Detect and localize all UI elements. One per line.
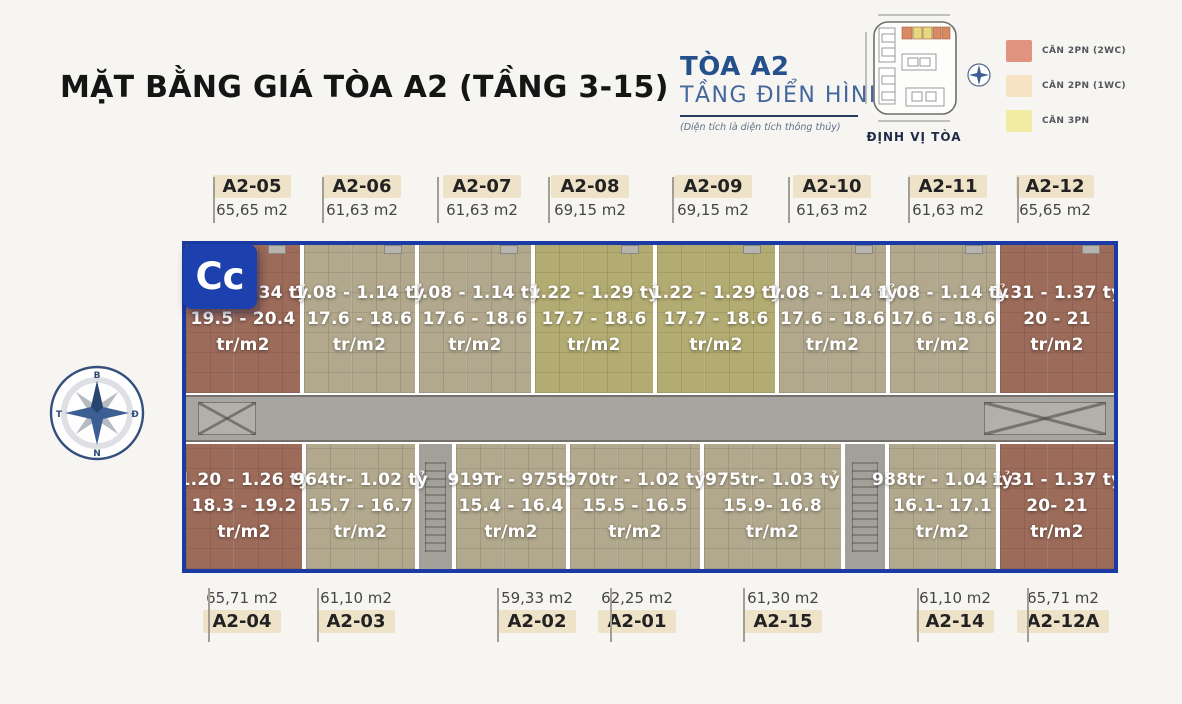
unit-cell-A2-12: 1.31 - 1.37 tỷ20 - 21tr/m2 — [1000, 245, 1114, 393]
unit-price-unit: tr/m2 — [333, 337, 386, 354]
unit-cell-A2-11: 1.08 - 1.14 tỷ17.6 - 18.6tr/m2 — [890, 245, 996, 393]
unit-id-chip: A2-06 — [323, 175, 402, 198]
unit-price-per-m2: 15.9- 16.8 — [723, 498, 822, 515]
unit-id-chip: A2-09 — [674, 175, 753, 198]
unit-area: 69,15 m2 — [653, 201, 773, 219]
label-divider — [610, 588, 612, 642]
unit-label-A2-07: A2-0761,63 m2 — [422, 175, 542, 222]
unit-price-unit: tr/m2 — [448, 337, 501, 354]
unit-cell-A2-10: 1.08 - 1.14 tỷ17.6 - 18.6tr/m2 — [779, 245, 886, 393]
legend-label: CĂN 3PN — [1042, 116, 1089, 126]
unit-cell-A2-12A: 1.31 - 1.37 tỷ20- 21tr/m2 — [1000, 444, 1114, 569]
unit-price-per-m2: 18.3 - 19.2 — [192, 498, 297, 515]
unit-price-per-m2: 20 - 21 — [1023, 311, 1091, 328]
unit-price-range: 970tr - 1.02 tỷ — [565, 472, 706, 489]
unit-price-unit: tr/m2 — [334, 524, 387, 541]
unit-price-per-m2: 16.1- 17.1 — [893, 498, 992, 515]
legend: CĂN 2PN (2WC)CĂN 2PN (1WC)CĂN 3PN — [1006, 40, 1126, 145]
unit-cell-A2-15: 975tr- 1.03 tỷ15.9- 16.8tr/m2 — [704, 444, 841, 569]
unit-price-unit: tr/m2 — [916, 524, 969, 541]
unit-id-chip: A2-08 — [551, 175, 630, 198]
unit-price-unit: tr/m2 — [689, 337, 742, 354]
unit-price-range: 1.08 - 1.14 tỷ — [410, 285, 541, 302]
unit-price-unit: tr/m2 — [806, 337, 859, 354]
unit-id-chip: A2-02 — [498, 610, 577, 633]
site-map-compass-icon — [966, 62, 992, 88]
floor-plan-top-row: 1.28 - 1.34 tỷ19.5 - 20.4tr/m21.08 - 1.1… — [186, 245, 1114, 393]
unit-area: 61,30 m2 — [723, 589, 843, 607]
unit-price-range: 1.22 - 1.29 tỷ — [529, 285, 660, 302]
unit-id-chip: A2-15 — [744, 610, 823, 633]
unit-price-range: 1.08 - 1.14 tỷ — [294, 285, 425, 302]
unit-price-range: 964tr- 1.02 tỷ — [293, 472, 428, 489]
unit-label-A2-01: 62,25 m2A2-01 — [577, 586, 697, 633]
unit-area: 65,65 m2 — [995, 201, 1115, 219]
legend-label: CĂN 2PN (1WC) — [1042, 81, 1126, 91]
brand-floor-type: TẦNG ĐIỂN HÌNH — [680, 83, 860, 108]
label-divider — [322, 177, 324, 223]
unit-cell-A2-02: 919Tr - 975tr15.4 - 16.4tr/m2 — [456, 444, 566, 569]
label-divider — [317, 588, 319, 642]
unit-label-A2-06: A2-0661,63 m2 — [302, 175, 422, 222]
unit-label-A2-10: A2-1061,63 m2 — [772, 175, 892, 222]
unit-price-range: 919Tr - 975tr — [447, 472, 574, 489]
legend-item: CĂN 3PN — [1006, 110, 1126, 132]
unit-label-A2-15: 61,30 m2A2-15 — [723, 586, 843, 633]
unit-cell-A2-14: 988tr - 1.04 tỷ16.1- 17.1tr/m2 — [889, 444, 996, 569]
unit-price-range: 1.31 - 1.37 tỷ — [992, 472, 1118, 489]
legend-swatch — [1006, 75, 1032, 97]
site-map-label: ĐỊNH VỊ TÒA — [858, 130, 970, 144]
unit-cell-A2-07: 1.08 - 1.14 tỷ17.6 - 18.6tr/m2 — [419, 245, 531, 393]
label-divider — [908, 177, 910, 223]
unit-area: 65,65 m2 — [192, 201, 312, 219]
unit-id-chip: A2-03 — [317, 610, 396, 633]
unit-price-unit: tr/m2 — [608, 524, 661, 541]
page-title: MẶT BẰNG GIÁ TÒA A2 (TẦNG 3-15) — [60, 70, 669, 105]
floor-plan-bottom-row: 1.20 - 1.26 tỷ18.3 - 19.2tr/m2964tr- 1.0… — [186, 444, 1114, 569]
label-divider — [213, 177, 215, 223]
unit-label-A2-05: A2-0565,65 m2 — [192, 175, 312, 222]
legend-label: CĂN 2PN (2WC) — [1042, 46, 1126, 56]
label-divider — [497, 588, 499, 642]
legend-item: CĂN 2PN (1WC) — [1006, 75, 1126, 97]
unit-cell-A2-03: 964tr- 1.02 tỷ15.7 - 16.7tr/m2 — [306, 444, 415, 569]
compass-icon: B Đ N T — [47, 363, 147, 463]
unit-price-per-m2: 17.6 - 18.6 — [891, 311, 996, 328]
label-divider — [548, 177, 550, 223]
brand-note: (Diện tích là diện tích thông thủy) — [680, 122, 860, 133]
unit-price-range: 975tr- 1.03 tỷ — [705, 472, 840, 489]
unit-area: 65,71 m2 — [182, 589, 302, 607]
unit-price-per-m2: 17.6 - 18.6 — [423, 311, 528, 328]
unit-id-chip: A2-05 — [213, 175, 292, 198]
unit-id-chip: A2-14 — [916, 610, 995, 633]
unit-label-A2-12: A2-1265,65 m2 — [995, 175, 1115, 222]
unit-label-A2-09: A2-0969,15 m2 — [653, 175, 773, 222]
legend-swatch — [1006, 110, 1032, 132]
unit-id-chip: A2-04 — [203, 610, 282, 633]
unit-id-chip: A2-10 — [793, 175, 872, 198]
unit-id-chip: A2-11 — [909, 175, 988, 198]
unit-area: 61,10 m2 — [895, 589, 1015, 607]
corridor-hatch-right — [984, 402, 1106, 435]
legend-item: CĂN 2PN (2WC) — [1006, 40, 1126, 62]
unit-price-unit: tr/m2 — [916, 337, 969, 354]
page: MẶT BẰNG GIÁ TÒA A2 (TẦNG 3-15) TÒA A2 T… — [0, 0, 1182, 704]
label-divider — [437, 177, 439, 223]
compass-north-label: B — [94, 371, 101, 381]
unit-cell-A2-01: 970tr - 1.02 tỷ15.5 - 16.5tr/m2 — [570, 444, 700, 569]
unit-area: 61,63 m2 — [302, 201, 422, 219]
legend-swatch — [1006, 40, 1032, 62]
label-divider — [917, 588, 919, 642]
stair-core — [419, 444, 452, 569]
compass-west-label: T — [56, 410, 63, 420]
unit-area: 61,63 m2 — [772, 201, 892, 219]
unit-area: 61,63 m2 — [422, 201, 542, 219]
unit-price-unit: tr/m2 — [567, 337, 620, 354]
unit-price-per-m2: 15.5 - 16.5 — [583, 498, 688, 515]
floor-plan: 1.28 - 1.34 tỷ19.5 - 20.4tr/m21.08 - 1.1… — [182, 241, 1118, 573]
unit-label-A2-04: 65,71 m2A2-04 — [182, 586, 302, 633]
unit-price-per-m2: 17.6 - 18.6 — [307, 311, 412, 328]
unit-price-unit: tr/m2 — [746, 524, 799, 541]
unit-area: 61,10 m2 — [296, 589, 416, 607]
unit-cell-A2-08: 1.22 - 1.29 tỷ17.7 - 18.6tr/m2 — [535, 245, 653, 393]
compass-east-label: Đ — [131, 410, 139, 420]
unit-price-range: 1.22 - 1.29 tỷ — [651, 285, 782, 302]
unit-price-range: 1.20 - 1.26 tỷ — [182, 472, 309, 489]
unit-label-A2-14: 61,10 m2A2-14 — [895, 586, 1015, 633]
comment-badge: Cc — [183, 244, 257, 309]
unit-area: 65,71 m2 — [1003, 589, 1123, 607]
unit-area: 61,63 m2 — [888, 201, 1008, 219]
site-map-tower-a2 — [902, 27, 950, 39]
unit-price-unit: tr/m2 — [217, 524, 270, 541]
unit-cell-A2-09: 1.22 - 1.29 tỷ17.7 - 18.6tr/m2 — [657, 245, 775, 393]
unit-area: 62,25 m2 — [577, 589, 697, 607]
unit-price-per-m2: 15.4 - 16.4 — [459, 498, 564, 515]
site-plan-map — [862, 8, 966, 130]
unit-cell-A2-06: 1.08 - 1.14 tỷ17.6 - 18.6tr/m2 — [304, 245, 415, 393]
unit-price-unit: tr/m2 — [1030, 337, 1083, 354]
compass-south-label: N — [93, 449, 101, 459]
unit-id-chip: A2-07 — [443, 175, 522, 198]
unit-label-A2-11: A2-1161,63 m2 — [888, 175, 1008, 222]
stair-core — [845, 444, 885, 569]
unit-cell-A2-04: 1.20 - 1.26 tỷ18.3 - 19.2tr/m2 — [186, 444, 302, 569]
label-divider — [208, 588, 210, 642]
brand-block: TÒA A2 TẦNG ĐIỂN HÌNH (Diện tích là diện… — [680, 52, 860, 133]
unit-label-A2-03: 61,10 m2A2-03 — [296, 586, 416, 633]
unit-price-per-m2: 19.5 - 20.4 — [191, 311, 296, 328]
brand-tower-name: TÒA A2 — [680, 52, 860, 82]
unit-price-unit: tr/m2 — [216, 337, 269, 354]
corridor — [186, 395, 1114, 442]
brand-divider — [680, 115, 858, 117]
unit-price-per-m2: 17.7 - 18.6 — [664, 311, 769, 328]
unit-price-per-m2: 17.7 - 18.6 — [542, 311, 647, 328]
unit-price-range: 1.08 - 1.14 tỷ — [878, 285, 1009, 302]
unit-price-per-m2: 15.7 - 16.7 — [308, 498, 413, 515]
unit-id-chip: A2-12 — [1016, 175, 1095, 198]
label-divider — [1017, 177, 1019, 223]
unit-id-chip: A2-12A — [1017, 610, 1110, 633]
unit-price-range: 1.31 - 1.37 tỷ — [992, 285, 1118, 302]
label-divider — [672, 177, 674, 223]
unit-price-per-m2: 17.6 - 18.6 — [780, 311, 885, 328]
label-divider — [1027, 588, 1029, 642]
label-divider — [743, 588, 745, 642]
unit-price-per-m2: 20- 21 — [1026, 498, 1088, 515]
label-divider — [788, 177, 790, 223]
unit-price-unit: tr/m2 — [484, 524, 537, 541]
unit-price-unit: tr/m2 — [1030, 524, 1083, 541]
corridor-hatch-left — [198, 402, 256, 435]
unit-label-A2-12A: 65,71 m2A2-12A — [1003, 586, 1123, 633]
